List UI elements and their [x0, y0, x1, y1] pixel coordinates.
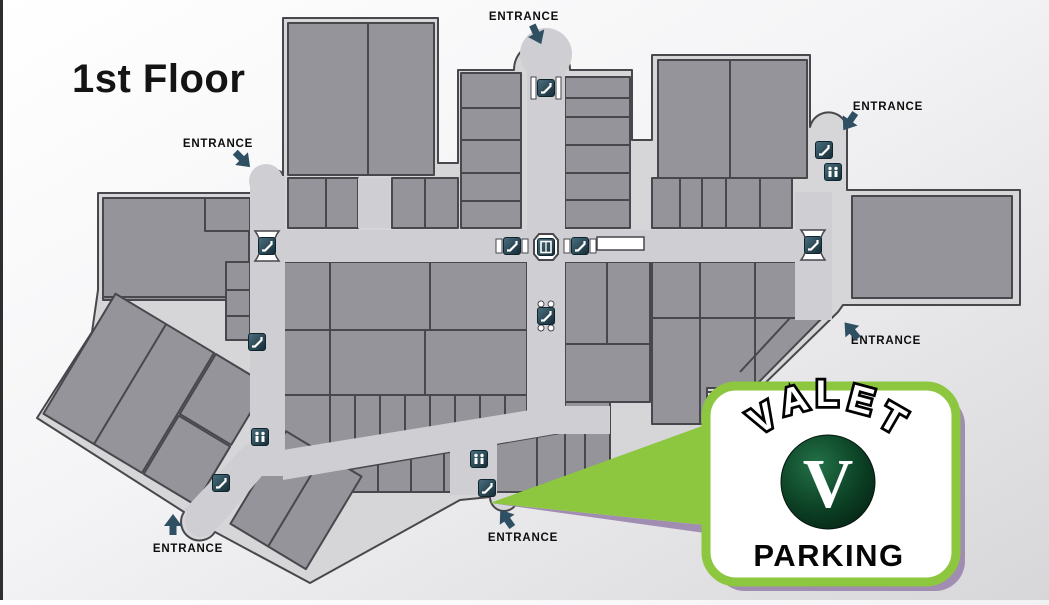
- store-unit: [658, 60, 730, 178]
- entrance-label: ENTRANCE: [489, 11, 559, 23]
- valet-parking-label: PARKING: [753, 538, 904, 573]
- mall-floor-plan-map: 1st Floor: [0, 0, 1049, 600]
- walkway-bridge: [597, 237, 644, 250]
- escalator-icon[interactable]: [213, 475, 230, 492]
- window-edge-strip: [0, 0, 3, 600]
- escalator-icon[interactable]: [496, 238, 528, 255]
- restroom-icon[interactable]: [252, 429, 269, 446]
- court-decor-layer: [597, 237, 644, 250]
- anchor-store-east: [852, 196, 1012, 298]
- entrance-label: ENTRANCE: [851, 335, 921, 347]
- escalator-icon[interactable]: [255, 231, 279, 261]
- floor-title: 1st Floor: [72, 57, 245, 101]
- store-unit: [730, 60, 807, 178]
- escalator-icon[interactable]: [801, 230, 825, 260]
- entrance-label: ENTRANCE: [488, 532, 558, 544]
- escalator-icon[interactable]: [249, 334, 266, 351]
- store-unit: [368, 23, 434, 175]
- valet-arc-letter: L: [816, 373, 839, 414]
- escalator-icon[interactable]: [479, 480, 496, 497]
- restroom-icon[interactable]: [471, 451, 488, 468]
- restroom-icon[interactable]: [825, 164, 842, 181]
- escalator-icon[interactable]: [816, 142, 833, 159]
- entrance-marker: ENTRANCE: [836, 101, 923, 135]
- entrance-marker: ENTRANCE: [838, 317, 921, 347]
- corridor-center-north-south: [527, 44, 565, 420]
- store-unit: [288, 23, 368, 175]
- entrance-label: ENTRANCE: [853, 101, 923, 113]
- entrance-arrow-icon: [164, 514, 182, 535]
- valet-monogram: V: [803, 446, 854, 523]
- escalator-icon[interactable]: [531, 77, 561, 99]
- entrance-label: ENTRANCE: [183, 138, 253, 150]
- entrance-label: ENTRANCE: [153, 543, 223, 555]
- escalator-icon[interactable]: [564, 238, 596, 255]
- elevator-icon[interactable]: [534, 234, 558, 260]
- entrance-marker: ENTRANCE: [183, 138, 257, 173]
